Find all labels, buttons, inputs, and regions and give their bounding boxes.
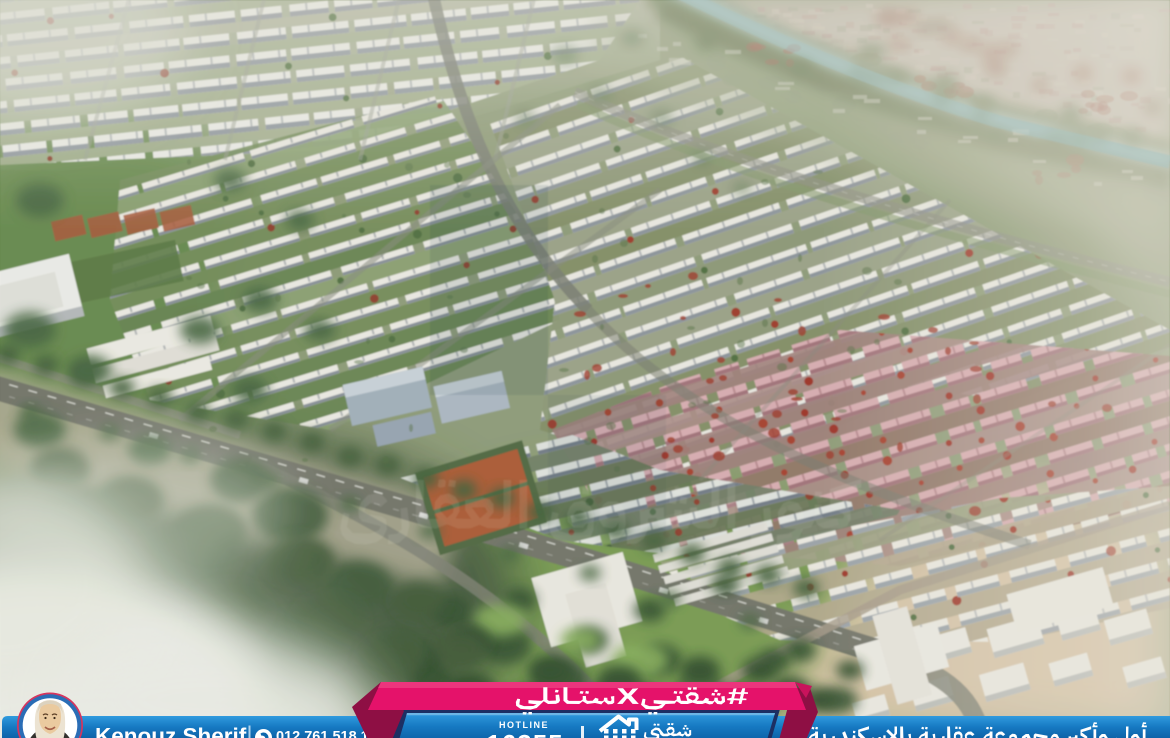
svg-text:012 761 518 11: 012 761 518 11 <box>276 729 376 738</box>
svg-text:16355: 16355 <box>486 729 563 738</box>
svg-text:Kenouz Sherif: Kenouz Sherif <box>95 724 247 738</box>
